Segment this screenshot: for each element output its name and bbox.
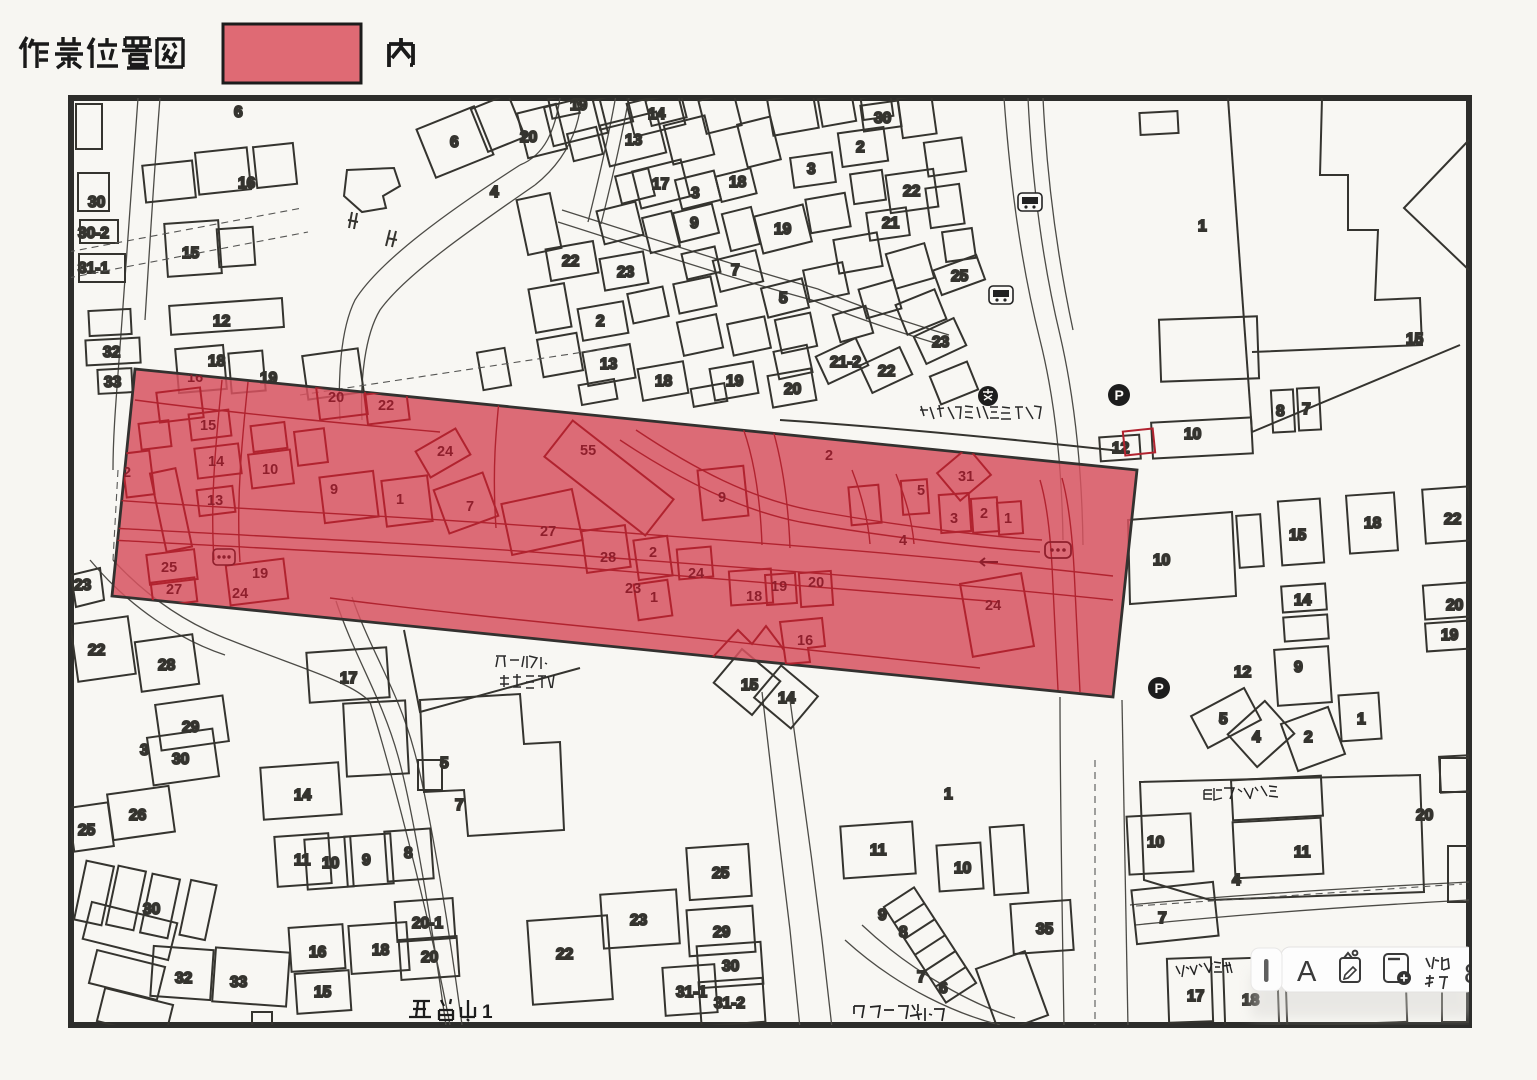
svg-text:15: 15 bbox=[1406, 331, 1424, 348]
svg-text:1: 1 bbox=[1357, 711, 1366, 728]
svg-text:8: 8 bbox=[1276, 403, 1285, 420]
svg-text:30-2: 30-2 bbox=[78, 225, 109, 242]
svg-text:27: 27 bbox=[166, 582, 182, 598]
svg-text:13: 13 bbox=[625, 132, 643, 149]
svg-text:4: 4 bbox=[490, 184, 499, 201]
svg-text:2: 2 bbox=[856, 139, 865, 156]
svg-text:12: 12 bbox=[1234, 664, 1251, 681]
svg-text:10: 10 bbox=[1184, 426, 1201, 443]
svg-text:19: 19 bbox=[771, 579, 787, 595]
svg-text:22: 22 bbox=[556, 946, 573, 963]
svg-text:6: 6 bbox=[939, 980, 948, 997]
svg-text:2: 2 bbox=[649, 545, 657, 561]
svg-text:30: 30 bbox=[172, 751, 189, 768]
svg-text:15: 15 bbox=[200, 418, 216, 434]
svg-text:21-2: 21-2 bbox=[830, 354, 861, 371]
svg-text:17: 17 bbox=[1187, 988, 1204, 1005]
svg-text:25: 25 bbox=[951, 268, 969, 285]
svg-text:19: 19 bbox=[1441, 627, 1459, 644]
svg-text:24: 24 bbox=[688, 566, 704, 582]
svg-text:9: 9 bbox=[878, 907, 887, 924]
svg-text:13: 13 bbox=[600, 356, 618, 373]
svg-text:10: 10 bbox=[1147, 834, 1164, 851]
svg-text:14: 14 bbox=[1294, 592, 1312, 609]
svg-text:9: 9 bbox=[1294, 659, 1303, 676]
svg-text:32: 32 bbox=[103, 344, 120, 361]
svg-text:7: 7 bbox=[731, 262, 740, 279]
svg-text:5: 5 bbox=[440, 755, 449, 772]
svg-text:55: 55 bbox=[580, 443, 596, 459]
svg-text:P: P bbox=[1155, 680, 1164, 696]
svg-text:29: 29 bbox=[182, 719, 200, 736]
svg-text:31-1: 31-1 bbox=[78, 260, 109, 277]
svg-text:7: 7 bbox=[1158, 910, 1167, 927]
svg-text:27: 27 bbox=[540, 524, 556, 540]
svg-text:33: 33 bbox=[230, 974, 248, 991]
svg-text:11: 11 bbox=[1294, 844, 1311, 861]
svg-text:17: 17 bbox=[340, 670, 357, 687]
svg-text:9: 9 bbox=[718, 490, 726, 506]
svg-text:4: 4 bbox=[1252, 729, 1261, 746]
svg-text:2: 2 bbox=[980, 506, 988, 522]
svg-text:18: 18 bbox=[208, 353, 226, 370]
svg-text:13: 13 bbox=[207, 493, 223, 509]
svg-text:15: 15 bbox=[182, 245, 200, 262]
svg-text:18: 18 bbox=[729, 174, 747, 191]
svg-text:22: 22 bbox=[562, 253, 579, 270]
svg-text:23: 23 bbox=[625, 581, 641, 597]
svg-text:1: 1 bbox=[944, 786, 953, 803]
svg-text:3: 3 bbox=[807, 161, 816, 178]
svg-text:9: 9 bbox=[690, 215, 699, 232]
svg-text:22: 22 bbox=[903, 183, 920, 200]
svg-text:28: 28 bbox=[600, 550, 616, 566]
svg-text:23: 23 bbox=[630, 912, 648, 929]
svg-text:10: 10 bbox=[262, 462, 278, 478]
svg-text:4: 4 bbox=[899, 533, 907, 549]
svg-text:4: 4 bbox=[1232, 872, 1241, 889]
svg-text:19: 19 bbox=[774, 221, 792, 238]
svg-text:21: 21 bbox=[882, 215, 900, 232]
svg-text:31-2: 31-2 bbox=[714, 995, 745, 1012]
svg-text:7: 7 bbox=[455, 797, 464, 814]
svg-text:30: 30 bbox=[722, 958, 739, 975]
svg-text:33: 33 bbox=[104, 374, 122, 391]
svg-text:30: 30 bbox=[143, 901, 160, 918]
svg-text:18: 18 bbox=[1364, 515, 1382, 532]
svg-text:29: 29 bbox=[713, 924, 731, 941]
svg-text:7: 7 bbox=[1302, 401, 1311, 418]
svg-text:20-1: 20-1 bbox=[412, 915, 443, 932]
svg-text:22: 22 bbox=[878, 363, 895, 380]
svg-text:A: A bbox=[1297, 956, 1317, 988]
svg-text:16: 16 bbox=[238, 175, 256, 192]
svg-text:14: 14 bbox=[294, 787, 312, 804]
svg-text:9: 9 bbox=[330, 482, 338, 498]
svg-text:18: 18 bbox=[746, 589, 762, 605]
svg-text:5: 5 bbox=[1219, 711, 1228, 728]
svg-text:5: 5 bbox=[779, 290, 788, 307]
svg-text:26: 26 bbox=[129, 807, 147, 824]
svg-text:20: 20 bbox=[808, 575, 824, 591]
svg-text:8: 8 bbox=[404, 845, 413, 862]
svg-text:8: 8 bbox=[899, 924, 908, 941]
svg-text:15: 15 bbox=[314, 984, 332, 1001]
svg-text:1: 1 bbox=[482, 1002, 493, 1023]
svg-text:1: 1 bbox=[396, 492, 404, 508]
svg-text:25: 25 bbox=[78, 822, 96, 839]
svg-text:10: 10 bbox=[1153, 552, 1170, 569]
svg-text:18: 18 bbox=[655, 373, 673, 390]
svg-text:15: 15 bbox=[741, 677, 759, 694]
svg-text:20: 20 bbox=[421, 949, 438, 966]
svg-text:22: 22 bbox=[378, 398, 394, 414]
svg-text:23: 23 bbox=[74, 577, 92, 594]
svg-text:18: 18 bbox=[372, 942, 390, 959]
svg-text:35: 35 bbox=[1036, 921, 1054, 938]
svg-text:7: 7 bbox=[466, 499, 474, 515]
svg-text:11: 11 bbox=[294, 852, 311, 869]
svg-text:P: P bbox=[1115, 387, 1124, 403]
svg-text:16: 16 bbox=[309, 944, 327, 961]
svg-text:1: 1 bbox=[650, 590, 658, 606]
svg-text:1: 1 bbox=[1198, 218, 1207, 235]
svg-text:20: 20 bbox=[1446, 597, 1463, 614]
svg-text:28: 28 bbox=[158, 657, 176, 674]
svg-text:20: 20 bbox=[784, 381, 801, 398]
svg-text:19: 19 bbox=[252, 566, 268, 582]
svg-text:1: 1 bbox=[1004, 511, 1012, 527]
svg-text:5: 5 bbox=[917, 483, 925, 499]
svg-text:20: 20 bbox=[328, 390, 344, 406]
svg-text:24: 24 bbox=[437, 444, 453, 460]
svg-text:10: 10 bbox=[322, 855, 339, 872]
svg-text:9: 9 bbox=[362, 852, 371, 869]
svg-text:12: 12 bbox=[213, 313, 230, 330]
svg-text:2: 2 bbox=[596, 313, 605, 330]
svg-text:24: 24 bbox=[985, 598, 1001, 614]
svg-text:16: 16 bbox=[797, 633, 813, 649]
svg-text:15: 15 bbox=[1289, 527, 1307, 544]
svg-text:20: 20 bbox=[1416, 807, 1433, 824]
svg-text:22: 22 bbox=[1444, 511, 1461, 528]
svg-text:14: 14 bbox=[778, 690, 796, 707]
svg-text:10: 10 bbox=[954, 860, 971, 877]
svg-text:6: 6 bbox=[450, 134, 459, 151]
svg-text:23: 23 bbox=[932, 334, 950, 351]
svg-text:25: 25 bbox=[712, 865, 730, 882]
svg-text:31-1: 31-1 bbox=[676, 984, 707, 1001]
svg-text:24: 24 bbox=[232, 586, 248, 602]
svg-text:31: 31 bbox=[958, 469, 974, 485]
svg-text:14: 14 bbox=[208, 454, 224, 470]
svg-text:30: 30 bbox=[88, 194, 105, 211]
svg-text:7: 7 bbox=[917, 969, 926, 986]
svg-text:25: 25 bbox=[161, 560, 177, 576]
svg-text:2: 2 bbox=[825, 448, 833, 464]
svg-text:2: 2 bbox=[1304, 729, 1313, 746]
svg-text:32: 32 bbox=[175, 970, 192, 987]
svg-text:6: 6 bbox=[234, 104, 243, 121]
svg-text:3: 3 bbox=[691, 185, 700, 202]
svg-text:3: 3 bbox=[950, 511, 958, 527]
svg-text:11: 11 bbox=[870, 842, 887, 859]
svg-text:3: 3 bbox=[140, 742, 149, 759]
svg-text:22: 22 bbox=[88, 642, 105, 659]
svg-text:19: 19 bbox=[726, 373, 744, 390]
svg-text:23: 23 bbox=[617, 264, 635, 281]
